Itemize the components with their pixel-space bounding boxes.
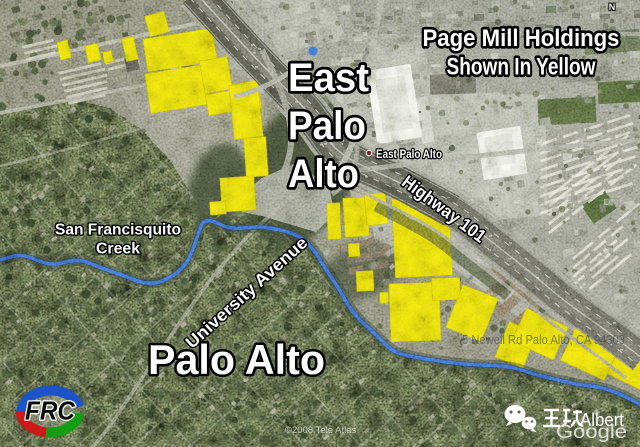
svg-text:Alto: Alto (288, 152, 359, 196)
svg-text:East: East (288, 56, 369, 100)
svg-text:©2008 Tele Atlas: ©2008 Tele Atlas (285, 425, 357, 436)
svg-text:Google: Google (556, 422, 627, 443)
svg-text:Shown In Yellow: Shown In Yellow (447, 54, 597, 81)
svg-text:East Palo Alto: East Palo Alto (376, 149, 442, 161)
svg-text:Palo: Palo (288, 104, 366, 148)
svg-text:Palo Alto: Palo Alto (148, 336, 325, 383)
svg-text:FRC: FRC (25, 396, 76, 426)
svg-text:San Francisquito: San Francisquito (55, 222, 181, 239)
svg-text:Creek: Creek (96, 241, 140, 258)
svg-text:5 Newell Rd Palo Alto, CA 9430: 5 Newell Rd Palo Alto, CA 94303 (462, 333, 625, 347)
svg-text:N: N (609, 2, 616, 12)
svg-text:Page Mill Holdings: Page Mill Holdings (423, 25, 620, 52)
